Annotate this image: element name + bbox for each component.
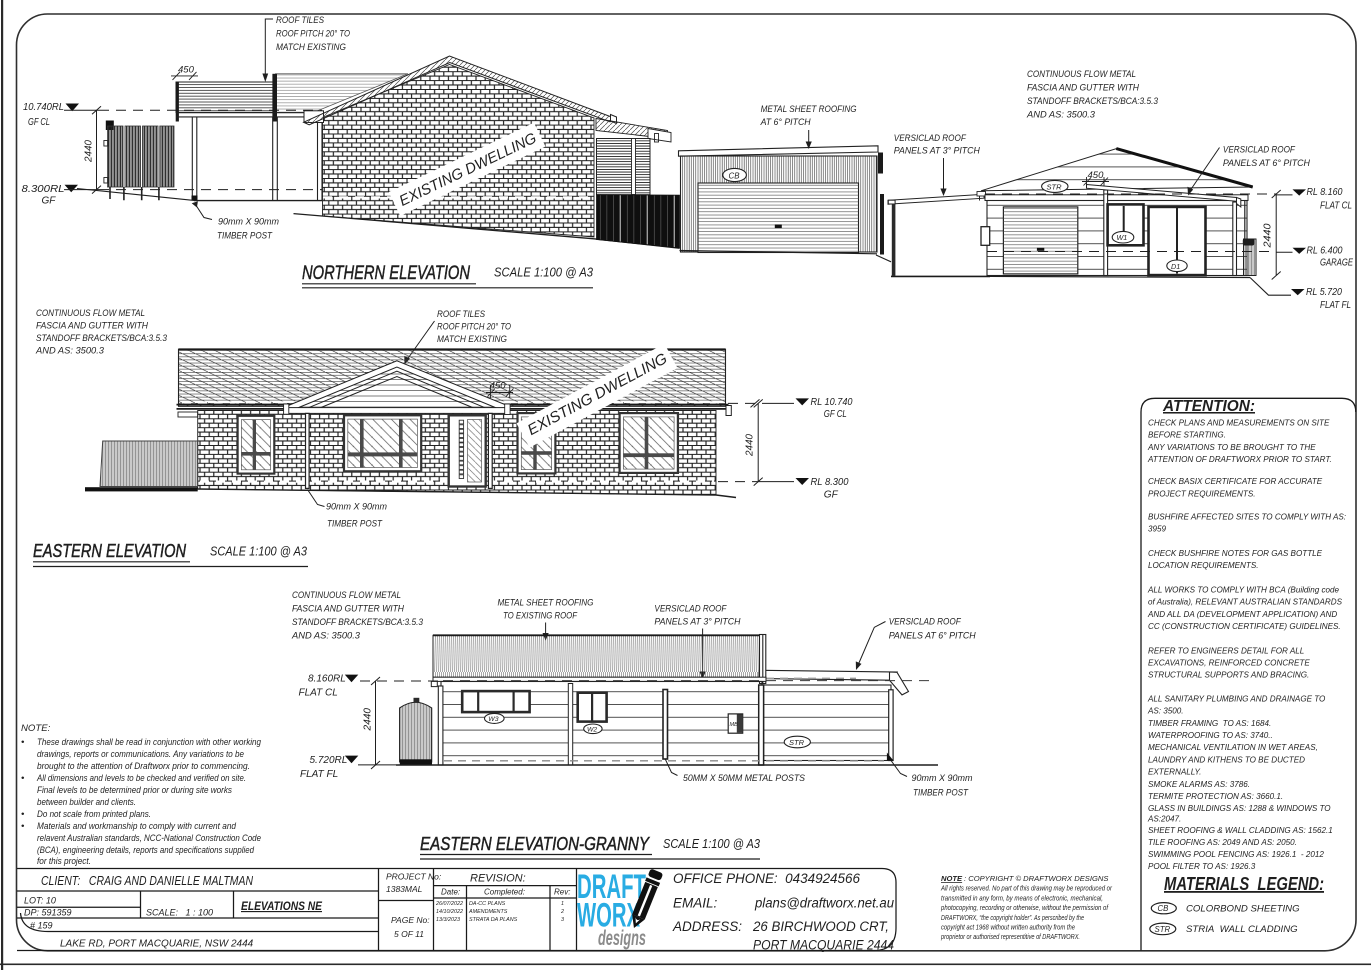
svg-text:GLASS IN BUILDINGS AS: 1288 &: GLASS IN BUILDINGS AS: 1288 & WINDOWS TO xyxy=(1148,804,1331,813)
svg-text:PANELS AT 3° PITCH: PANELS AT 3° PITCH xyxy=(654,617,740,628)
svg-text:CONTINUOUS FLOW METAL: CONTINUOUS FLOW METAL xyxy=(292,590,401,601)
svg-text:ALL WORKS TO COMPLY WITH BCA (: ALL WORKS TO COMPLY WITH BCA (Building c… xyxy=(1147,585,1340,594)
svg-text:TIMBER FRAMING TO AS: 1684.: TIMBER FRAMING TO AS: 1684. xyxy=(1148,719,1271,728)
svg-text:2440: 2440 xyxy=(744,434,756,457)
svg-text:10.740RL: 10.740RL xyxy=(23,102,64,113)
svg-text:WATERPROOFING TO AS: 3740..: WATERPROOFING TO AS: 3740.. xyxy=(1148,731,1273,740)
svg-text:STRUCTURAL SUPPORTS AND BRACIN: STRUCTURAL SUPPORTS AND BRACING. xyxy=(1148,671,1309,680)
svg-text:VERSICLAD ROOF: VERSICLAD ROOF xyxy=(1223,145,1296,156)
svg-text:MATCH EXISTING: MATCH EXISTING xyxy=(276,42,346,53)
svg-text:COLORBOND SHEETING: COLORBOND SHEETING xyxy=(1186,904,1300,915)
svg-text:ROOF PITCH 20° TO: ROOF PITCH 20° TO xyxy=(437,322,511,333)
svg-text:450: 450 xyxy=(490,381,507,392)
svg-text:8.160RL: 8.160RL xyxy=(308,673,346,684)
svg-text:SCALE: 1 : 100: SCALE: 1 : 100 xyxy=(146,908,213,918)
svg-text:LAKE RD, PORT MACQUARIE, NSW 2: LAKE RD, PORT MACQUARIE, NSW 2444 xyxy=(60,939,254,950)
svg-text:GF CL: GF CL xyxy=(824,409,847,420)
svg-text:SMOKE ALARMS AS: 3786.: SMOKE ALARMS AS: 3786. xyxy=(1148,780,1250,789)
svg-text:MATERIALS LEGEND:: MATERIALS LEGEND: xyxy=(1164,874,1324,894)
svg-text:TO EXISTING ROOF: TO EXISTING ROOF xyxy=(503,611,578,622)
svg-text:DP: 591359: DP: 591359 xyxy=(24,908,72,918)
svg-text:STANDOFF BRACKETS/BCA:3.5.3: STANDOFF BRACKETS/BCA:3.5.3 xyxy=(1027,96,1159,107)
svg-text:GF CL: GF CL xyxy=(28,117,50,128)
svg-text:LOCATION REQUIREMENTS.: LOCATION REQUIREMENTS. xyxy=(1148,561,1258,570)
svg-text:ROOF PITCH 20° TO: ROOF PITCH 20° TO xyxy=(276,29,350,40)
svg-text:Rev:: Rev: xyxy=(554,888,570,897)
svg-text:STRATA DA PLANS: STRATA DA PLANS xyxy=(469,917,518,923)
svg-text:relavent Australian standards,: relavent Australian standards, NCC-Natio… xyxy=(37,833,261,844)
svg-text:CC (CONSTRUCTION CERTIFICATE): CC (CONSTRUCTION CERTIFICATE) GUIDELINES… xyxy=(1148,622,1341,631)
svg-text:PANELS AT 3° PITCH: PANELS AT 3° PITCH xyxy=(894,146,980,157)
svg-text:ADDRESS:: ADDRESS: xyxy=(672,919,742,934)
svg-text:VERSICLAD ROOF: VERSICLAD ROOF xyxy=(894,133,967,144)
svg-text:AS:2047.: AS:2047. xyxy=(1147,815,1181,824)
svg-text:NOTE: NOTE xyxy=(941,874,963,883)
svg-text:transmitted in any form, by me: transmitted in any form, by means of ele… xyxy=(941,893,1103,902)
svg-text:SWIMMING POOL FENCING AS: 1926: SWIMMING POOL FENCING AS: 1926.1 - 2012 xyxy=(1148,850,1324,859)
svg-text:TILE ROOFING AS: 2049 AND AS:: TILE ROOFING AS: 2049 AND AS: 2050. xyxy=(1148,838,1297,847)
svg-text:EXTERNALLY.: EXTERNALLY. xyxy=(1148,768,1201,777)
svg-text:450: 450 xyxy=(1088,170,1105,181)
svg-text:FLAT FL: FLAT FL xyxy=(300,769,338,780)
svg-text:REFER TO ENGINEERS DETAIL FOR: REFER TO ENGINEERS DETAIL FOR ALL xyxy=(1148,646,1304,655)
svg-text:AND AS: 3500.3: AND AS: 3500.3 xyxy=(1026,110,1096,121)
svg-text:ROOF TILES: ROOF TILES xyxy=(437,309,485,320)
svg-text:90mm X 90mm: 90mm X 90mm xyxy=(218,217,279,228)
svg-text:RL 6.400: RL 6.400 xyxy=(1307,245,1343,256)
svg-text:1383MAL: 1383MAL xyxy=(386,884,423,894)
svg-text:GF: GF xyxy=(42,196,57,207)
svg-text:RL 8.300: RL 8.300 xyxy=(811,477,849,488)
svg-text:PORT MACQUARIE 2444: PORT MACQUARIE 2444 xyxy=(753,938,894,953)
svg-text:DA-CC PLANS: DA-CC PLANS xyxy=(469,901,506,907)
svg-text:3959: 3959 xyxy=(1148,525,1167,534)
svg-text:These drawings shall be read i: These drawings shall be read in conjunct… xyxy=(37,737,262,748)
svg-text:W1: W1 xyxy=(1117,233,1128,242)
svg-text:SCALE 1:100 @ A3: SCALE 1:100 @ A3 xyxy=(210,545,307,559)
svg-text:Materials and workmanship to c: Materials and workmanship to comply with… xyxy=(37,821,237,832)
svg-text:1: 1 xyxy=(561,901,564,907)
svg-text:photocopying, recording or oth: photocopying, recording or otherwise, wi… xyxy=(940,903,1108,912)
svg-text:RL 5.720: RL 5.720 xyxy=(1306,287,1342,298)
svg-text:STANDOFF BRACKETS/BCA:3.5.3: STANDOFF BRACKETS/BCA:3.5.3 xyxy=(292,617,424,628)
svg-text:W2: W2 xyxy=(587,727,597,734)
svg-text:VERSICLAD ROOF: VERSICLAD ROOF xyxy=(889,617,962,628)
svg-text:between builder and clients.: between builder and clients. xyxy=(37,797,136,808)
svg-text:TIMBER POST: TIMBER POST xyxy=(913,788,969,799)
svg-text:8.300RL: 8.300RL xyxy=(22,184,65,195)
svg-text:ALL SANITARY PLUMBING AND DRAI: ALL SANITARY PLUMBING AND DRAINAGE TO xyxy=(1147,694,1326,703)
svg-text:drawings, reports or communica: drawings, reports or communications. Any… xyxy=(37,749,244,760)
svg-text:STR: STR xyxy=(789,738,805,747)
svg-text:90mm X 90mm: 90mm X 90mm xyxy=(326,502,387,513)
svg-text:ATTENTION:: ATTENTION: xyxy=(1162,398,1255,415)
svg-text:(BCA), engineering details, re: (BCA), engineering details, reports and … xyxy=(37,845,255,856)
svg-text:SCALE 1:100 @ A3: SCALE 1:100 @ A3 xyxy=(663,837,760,851)
svg-text:METAL SHEET ROOFING: METAL SHEET ROOFING xyxy=(761,104,857,115)
svg-text:of Australia), RELEVANT AUSTRA: of Australia), RELEVANT AUSTRALIAN STAND… xyxy=(1148,598,1343,607)
svg-text:REVISION:: REVISION: xyxy=(470,873,526,885)
svg-text:for this project.: for this project. xyxy=(37,856,91,867)
svg-text:TIMBER POST: TIMBER POST xyxy=(217,231,273,242)
svg-text:designs: designs xyxy=(598,927,646,950)
svg-text:STANDOFF BRACKETS/BCA:3.5.3: STANDOFF BRACKETS/BCA:3.5.3 xyxy=(36,333,168,344)
svg-text:brought to the attention of Dr: brought to the attention of Draftworx pr… xyxy=(37,761,250,772)
svg-text:CONTINUOUS FLOW METAL: CONTINUOUS FLOW METAL xyxy=(1027,69,1136,80)
svg-text:CLIENT: CRAIG AND DANIELLE M: CLIENT: CRAIG AND DANIELLE MALTMAN xyxy=(41,874,254,888)
svg-text:BUSHFIRE AFFECTED SITES TO COM: BUSHFIRE AFFECTED SITES TO COMPLY WITH A… xyxy=(1148,512,1346,521)
svg-text:AND ALL DA (DEVELOPMENT APPLIC: AND ALL DA (DEVELOPMENT APPLICATION) AND xyxy=(1147,610,1337,619)
svg-text:FLAT FL: FLAT FL xyxy=(1320,300,1351,311)
svg-text:DRAFTWORX, “the copyright hold: DRAFTWORX, “the copyright holder”. As pe… xyxy=(941,913,1084,922)
svg-text:RL 10.740: RL 10.740 xyxy=(811,397,853,408)
svg-text:FLAT CL: FLAT CL xyxy=(299,687,338,698)
svg-text:Do not scale from printed plan: Do not scale from printed plans. xyxy=(37,809,151,820)
svg-text:FASCIA AND GUTTER WITH: FASCIA AND GUTTER WITH xyxy=(292,604,404,615)
svg-text:450: 450 xyxy=(178,65,195,76)
svg-text:D1: D1 xyxy=(1171,262,1180,271)
svg-text:W3: W3 xyxy=(488,716,498,723)
svg-text:PROJECT REQUIREMENTS.: PROJECT REQUIREMENTS. xyxy=(1148,489,1255,498)
svg-text:2: 2 xyxy=(560,909,564,915)
svg-text:CB: CB xyxy=(1158,904,1169,913)
svg-text:proprietor or authorised repre: proprietor or authorised representitive … xyxy=(940,932,1080,941)
svg-text:PANELS AT 6° PITCH: PANELS AT 6° PITCH xyxy=(1223,158,1310,169)
svg-text:FASCIA AND GUTTER WITH: FASCIA AND GUTTER WITH xyxy=(36,321,148,332)
svg-text:# 159: # 159 xyxy=(30,921,53,931)
svg-text:All dimensions and levels to b: All dimensions and levels to be checked … xyxy=(36,773,246,784)
svg-text:All rights reserved. No part o: All rights reserved. No part of this dra… xyxy=(940,884,1112,893)
svg-text:90mm X 90mm: 90mm X 90mm xyxy=(912,773,973,784)
svg-text:BEFORE STARTING.: BEFORE STARTING. xyxy=(1148,431,1226,440)
svg-text:FASCIA AND GUTTER WITH: FASCIA AND GUTTER WITH xyxy=(1027,83,1139,94)
svg-text:AT 6° PITCH: AT 6° PITCH xyxy=(760,117,811,128)
svg-text:VERSICLAD ROOF: VERSICLAD ROOF xyxy=(654,604,727,615)
svg-text:STR: STR xyxy=(1155,925,1171,934)
svg-text:LOT: 10: LOT: 10 xyxy=(24,896,56,906)
svg-text:CONTINUOUS FLOW METAL: CONTINUOUS FLOW METAL xyxy=(36,308,145,319)
svg-text:NOTE:: NOTE: xyxy=(21,723,51,734)
svg-text:3: 3 xyxy=(561,917,564,923)
svg-text:50MM X 50MM METAL POSTS: 50MM X 50MM METAL POSTS xyxy=(683,773,806,784)
svg-text:NORTHERN ELEVATION: NORTHERN ELEVATION xyxy=(302,262,471,284)
svg-text:14/10/2022: 14/10/2022 xyxy=(436,909,463,915)
svg-text:PROJECT No:: PROJECT No: xyxy=(386,872,442,882)
svg-text:CHECK BUSHFIRE NOTES FOR GAS B: CHECK BUSHFIRE NOTES FOR GAS BOTTLE xyxy=(1148,549,1323,558)
svg-text:Date:: Date: xyxy=(441,888,460,897)
svg-text:CHECK PLANS AND MEASUREMENTS O: CHECK PLANS AND MEASUREMENTS ON SITE xyxy=(1148,419,1330,428)
svg-text:Final levels to be determined: Final levels to be determined prior or d… xyxy=(37,785,232,796)
svg-text:26 BIRCHWOOD CRT,: 26 BIRCHWOOD CRT, xyxy=(752,919,889,934)
svg-text:CHECK BASIX CERTIFICATE FOR AC: CHECK BASIX CERTIFICATE FOR ACCURATE xyxy=(1148,477,1323,486)
svg-text:SCALE 1:100 @ A3: SCALE 1:100 @ A3 xyxy=(494,265,594,280)
svg-text:ELEVATIONS NE: ELEVATIONS NE xyxy=(241,901,322,913)
svg-text:5.720RL: 5.720RL xyxy=(310,755,348,766)
svg-text:EXCAVATIONS, REINFORCED CONCRE: EXCAVATIONS, REINFORCED CONCRETE xyxy=(1148,659,1310,668)
svg-text:GF: GF xyxy=(824,490,839,501)
svg-text:MATCH EXISTING: MATCH EXISTING xyxy=(437,334,507,345)
svg-text:MECHANICAL VENTILATION IN WET: MECHANICAL VENTILATION IN WET AREAS, xyxy=(1148,743,1318,752)
svg-text:MB: MB xyxy=(730,722,739,728)
svg-text:ANY VARIATIONS TO BE BROUGHT T: ANY VARIATIONS TO BE BROUGHT TO THE xyxy=(1147,443,1316,452)
svg-text:26/07/2022: 26/07/2022 xyxy=(435,901,463,907)
svg-text:STR: STR xyxy=(1047,183,1063,192)
svg-text:OFFICE PHONE: 0434924566: OFFICE PHONE: 0434924566 xyxy=(673,871,860,886)
svg-text:PANELS AT 6° PITCH: PANELS AT 6° PITCH xyxy=(889,631,976,642)
svg-text:13/3/2023: 13/3/2023 xyxy=(436,917,460,923)
svg-text:AND AS: 3500.3: AND AS: 3500.3 xyxy=(35,346,105,357)
svg-text:ROOF TILES: ROOF TILES xyxy=(276,15,324,26)
svg-text:plans@draftworx.net.au: plans@draftworx.net.au xyxy=(754,896,894,911)
svg-text:EASTERN ELEVATION-GRANNY: EASTERN ELEVATION-GRANNY xyxy=(420,834,651,854)
svg-text:AMENDMENTS: AMENDMENTS xyxy=(468,909,508,915)
svg-text:POOL FILTER TO AS: 1926.3: POOL FILTER TO AS: 1926.3 xyxy=(1148,862,1256,871)
svg-text:GARAGE: GARAGE xyxy=(1320,258,1353,269)
svg-text:CB: CB xyxy=(729,172,741,181)
svg-text:2440: 2440 xyxy=(83,140,95,163)
svg-text:2440: 2440 xyxy=(362,708,374,732)
svg-text:: COPYRIGHT © DRAFTWORX DESIGN: : COPYRIGHT © DRAFTWORX DESIGNS xyxy=(964,874,1108,883)
svg-text:METAL SHEET ROOFING: METAL SHEET ROOFING xyxy=(498,598,594,609)
svg-text:AS: 3500.: AS: 3500. xyxy=(1147,707,1184,716)
svg-text:EMAIL:: EMAIL: xyxy=(673,896,718,911)
svg-text:copyright act 1968 without wri: copyright act 1968 without written autho… xyxy=(941,923,1075,932)
svg-text:ATTENTION OF DRAFTWORX PRIOR T: ATTENTION OF DRAFTWORX PRIOR TO START. xyxy=(1147,455,1332,464)
svg-text:EASTERN ELEVATION: EASTERN ELEVATION xyxy=(33,541,187,561)
svg-text:Completed:: Completed: xyxy=(484,888,525,897)
svg-text:STRIA WALL CLADDING: STRIA WALL CLADDING xyxy=(1186,924,1298,935)
svg-text:PAGE No:: PAGE No: xyxy=(391,915,430,925)
svg-text:AND AS: 3500.3: AND AS: 3500.3 xyxy=(291,631,361,642)
svg-text:SHEET ROOFING & WALL CLADDING: SHEET ROOFING & WALL CLADDING AS: 1562.1 xyxy=(1148,826,1333,835)
svg-text:LAUNDRY AND KITHENS TO BE DUCT: LAUNDRY AND KITHENS TO BE DUCTED xyxy=(1148,755,1305,764)
svg-text:FLAT CL: FLAT CL xyxy=(1320,200,1352,211)
svg-text:5 OF 11: 5 OF 11 xyxy=(394,929,424,939)
svg-text:RL 8.160: RL 8.160 xyxy=(1307,187,1343,198)
svg-text:2440: 2440 xyxy=(1262,223,1274,248)
svg-text:TERMITE PROTECTION AS: 3660.1.: TERMITE PROTECTION AS: 3660.1. xyxy=(1148,792,1283,801)
svg-text:TIMBER POST: TIMBER POST xyxy=(327,519,383,530)
